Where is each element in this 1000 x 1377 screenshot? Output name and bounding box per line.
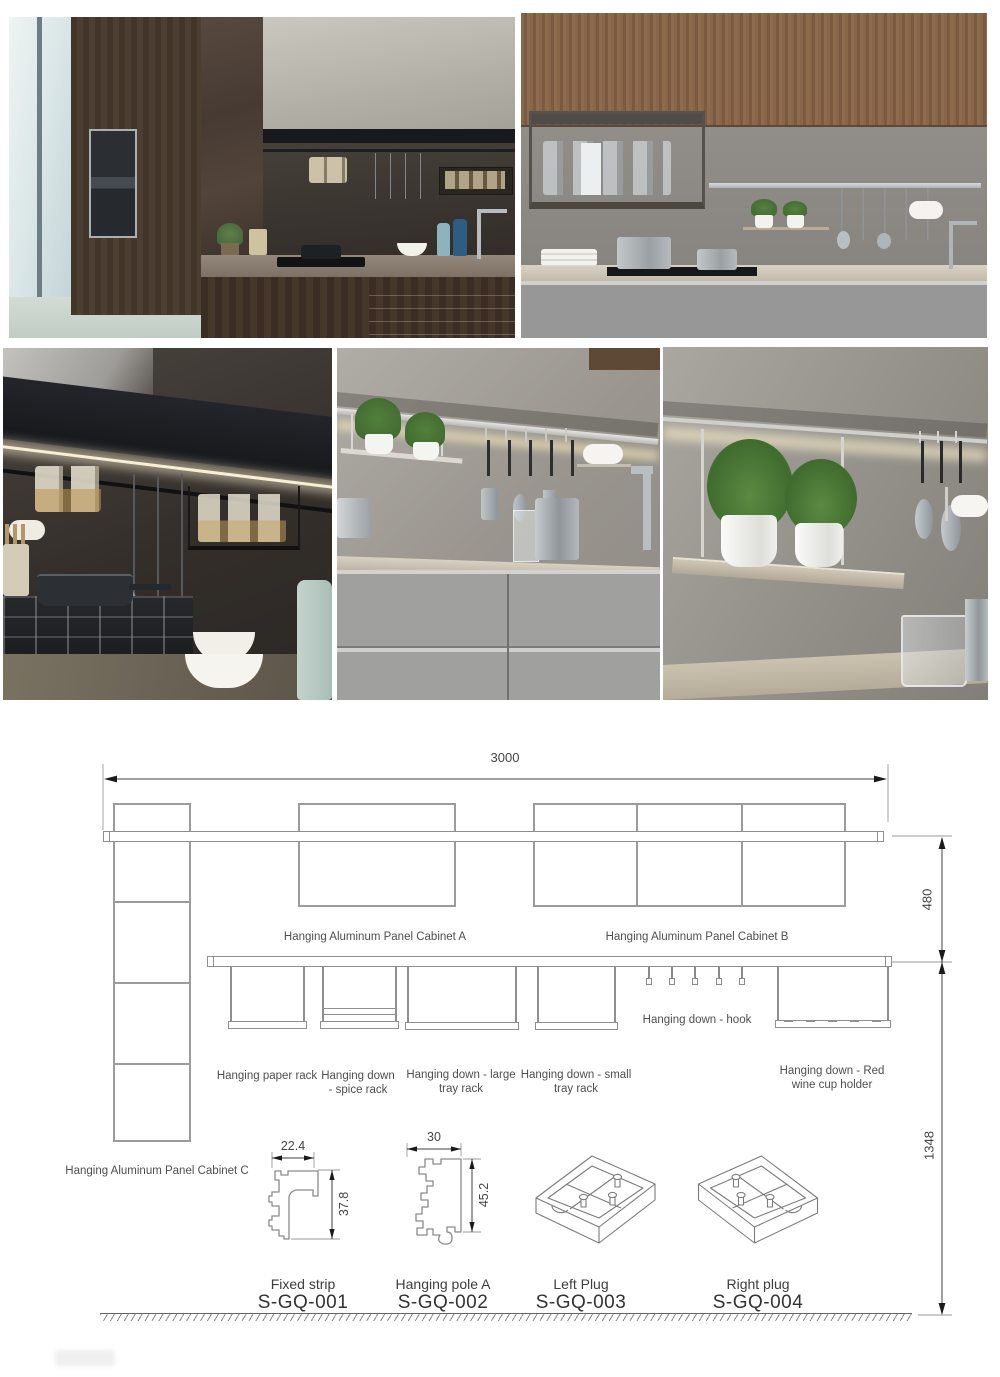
faucet [949,221,977,269]
shelf-board [672,557,905,589]
photo-dark-wood-kitchen [9,17,515,338]
blue-bottle-light [437,223,450,256]
large-tray-label-1: Hanging down - large [406,1069,515,1082]
paper-rack-label: Hanging paper rack [217,1070,317,1083]
part-code-right-plug: S-GQ-004 [713,1292,804,1314]
wood-corner [589,348,660,370]
hanging-hook-2 [668,967,675,985]
white-pot-1 [721,515,777,567]
hanging-hook-1 [645,967,652,985]
utensil-handles [469,440,575,476]
spice-rack-bottom-bar [320,1021,399,1029]
paper-holder-arm [945,487,948,521]
wine-holder-label-1: Hanging down - Red [780,1065,885,1078]
spoon-head-1 [915,499,933,539]
hanging-hook-5 [738,967,745,985]
window-frame [37,17,42,338]
drawer-handle-lines [369,283,515,338]
cabinet-b-divider-1 [636,804,638,906]
photo-walnut-grey-kitchen [521,13,987,338]
cabinet-a-label: Hanging Aluminum Panel Cabinet A [284,931,466,944]
cabinet-b-divider-2 [741,804,743,906]
pot-2 [413,442,439,460]
large-tray-label-2: tray rack [439,1083,483,1096]
paper-roll [951,495,988,517]
cabinet-b-outline [533,803,846,907]
faucet-arm [631,466,653,474]
spice-jars [445,171,505,189]
ladle-head [877,233,891,249]
hook-label: Hanging down - hook [643,1014,752,1027]
rail-end-cap-left [104,832,110,841]
plate-stack [541,249,597,266]
paper-rack-outline [230,967,305,1029]
wood-upper-cabinets [521,13,987,127]
base-cabinets [521,281,987,338]
hanging-utensils [361,153,423,199]
slotted-spatula [481,488,498,520]
faucet [477,209,507,259]
aluminum-panel-bar [207,956,892,967]
blue-bottle-dark [453,219,467,256]
shelf-rod-1 [351,414,353,452]
cabinet-a-outline [298,803,456,907]
white-pot-2 [795,523,843,567]
drinking-glass [901,615,967,687]
cabinet-c-divider-1 [114,901,190,903]
glass-bottles [543,141,671,195]
spice-rack-shelf-bar [324,1008,395,1015]
hanging-hook-3 [691,967,698,985]
pan [301,245,341,259]
panel-end-cap-right [885,957,891,966]
small-tray-label-1: Hanging down - small [521,1069,632,1082]
watermark-smudge [55,1350,115,1366]
part-code-pole-a: S-GQ-002 [398,1292,489,1314]
part-code-left-plug: S-GQ-003 [536,1292,627,1314]
hanging-shelf [341,448,463,464]
fixed-strip-width-dim: 22.4 [281,1139,305,1153]
small-tray-bottom-bar [535,1022,618,1030]
shelf-bracket-1 [701,429,704,557]
small-tray-rack-outline [537,967,616,1030]
paper-towel-roll [909,201,943,219]
hanging-rail-bar [103,831,884,842]
spoon-head [837,231,850,249]
herb-shelf [743,227,829,230]
paper-roll [583,444,623,464]
paper-shelf [577,464,631,467]
utensil-handles [905,441,971,483]
cabinet-c-label: Hanging Aluminum Panel Cabinet C [65,1165,248,1178]
catalog-page: 3000 480 1348 Hanging Aluminum Panel Cab… [0,0,1000,1377]
ground-line [100,1313,912,1321]
part-code-fixed-strip: S-GQ-001 [258,1292,349,1314]
photo-dark-marble-rail [3,348,332,700]
photo-hanging-shelf-plants [663,347,988,700]
utensil-crock [3,544,29,596]
plant-pot [221,243,239,255]
faucet-column [643,468,651,550]
glass-jars [309,157,347,183]
soffit [263,129,515,143]
large-tray-bottom-bar [405,1022,519,1030]
large-tray-rack-outline [407,967,517,1030]
stock-pot [617,237,671,269]
spice-rack-label-1: Hanging down [321,1070,395,1083]
hanging-hook-4 [715,967,722,985]
part-name-pole-a: Hanging pole A [396,1276,491,1292]
sauce-pot [697,249,737,270]
paper-rack-bottom-bar [228,1021,307,1029]
wine-holder-slots [784,1020,882,1022]
spice-rack-label-2: - spice rack [329,1084,388,1097]
dim-total-width: 3000 [491,750,520,765]
part-name-right-plug: Right plug [726,1276,789,1292]
utensil-crock [249,229,267,255]
part-name-left-plug: Left Plug [553,1276,608,1292]
frying-pan [37,574,133,606]
cereal-jars [35,466,101,512]
pan-handle [129,584,171,590]
marble-column [201,17,263,255]
hanging-rail [263,149,515,152]
potted-plant [217,223,243,245]
drawer-fronts [337,570,660,700]
cabinet-c-divider-3 [114,1063,190,1065]
small-tray-label-2: tray rack [554,1083,598,1096]
marble-counter [3,654,332,700]
wine-holder-label-2: wine cup holder [792,1079,873,1092]
wooden-utensils [5,524,27,546]
white-canister [581,143,601,195]
upper-cabinets [263,17,515,135]
photo-grey-rail-utensils [337,348,660,700]
herb-pot-1 [755,215,773,228]
pole-a-height-dim: 45.2 [477,1173,491,1217]
herb-pot-2 [787,215,804,228]
part-name-fixed-strip: Fixed strip [271,1276,336,1292]
pole-a-width-dim: 30 [427,1130,441,1144]
pot-edge [337,498,371,538]
rail-end-cap-right [877,832,883,841]
spice-bottles [198,494,286,542]
blue-vase [297,580,332,700]
dim-rail-height: 480 [920,878,935,922]
steel-jug [535,498,579,560]
dim-floor-height: 1348 [922,1124,937,1168]
cabinet-c-outline [113,803,191,1142]
pot-1 [365,434,393,454]
built-in-ovens [89,129,137,238]
wine-cup-holder-outline [777,967,889,1028]
steel-cup [965,599,988,681]
cabinet-c-divider-2 [114,982,190,984]
spice-rack-outline [322,967,397,1029]
panel-end-cap-left [208,957,214,966]
cabinet-b-label: Hanging Aluminum Panel Cabinet B [606,931,789,944]
fixed-strip-height-dim: 37.8 [337,1182,351,1226]
